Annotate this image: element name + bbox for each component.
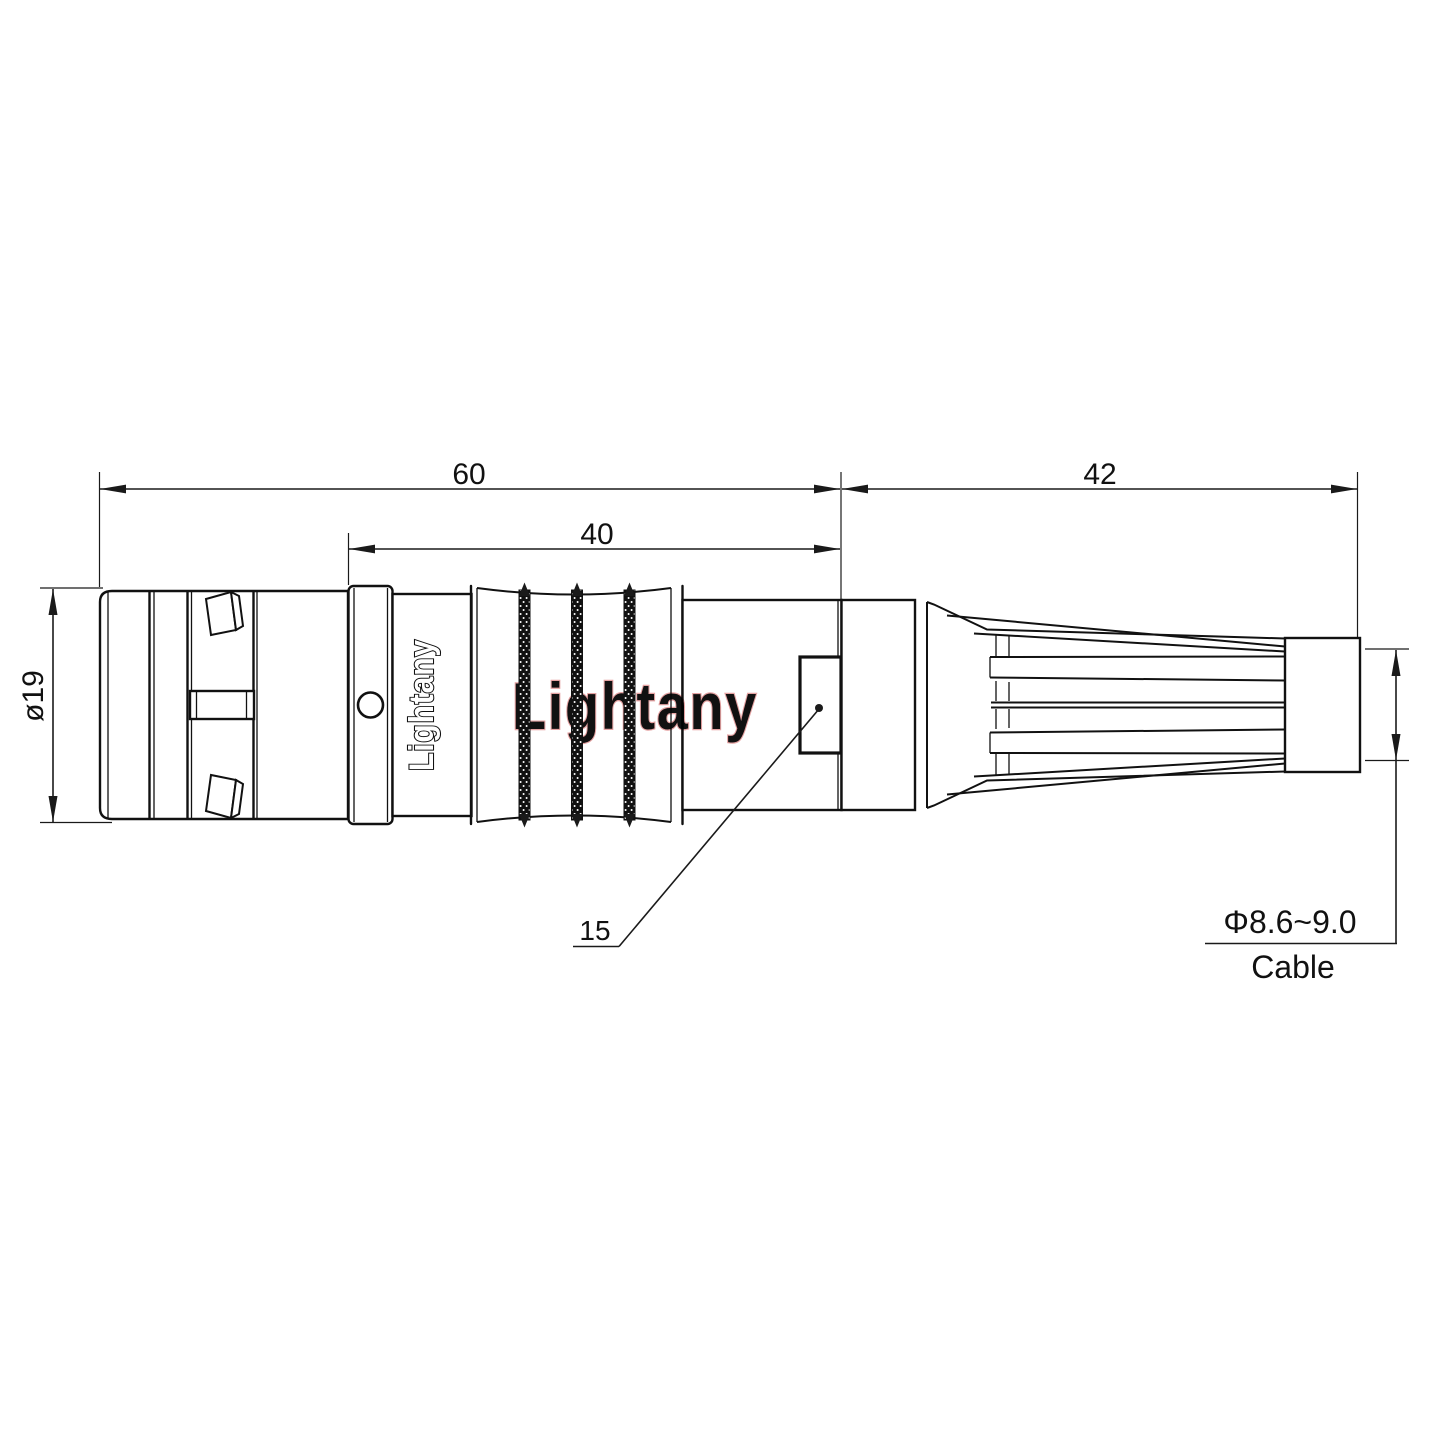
- leader-dot: [815, 704, 823, 712]
- dimension-40: 40: [349, 518, 841, 585]
- body-engraving-text: Lightany: [403, 639, 441, 771]
- engraved-section: Lightany: [393, 594, 472, 816]
- dim-42-label: 42: [1083, 458, 1116, 491]
- dim-60-label: 60: [452, 458, 485, 491]
- ring-hole: [358, 693, 383, 718]
- coupling-ring: [349, 586, 393, 824]
- boot-collar: [842, 600, 928, 810]
- connector-technical-drawing: Lightany: [0, 0, 1440, 1440]
- boot-fin-connectors: [996, 634, 1009, 776]
- dim-15-label: 15: [579, 915, 610, 946]
- cable-diameter-label: Φ8.6~9.0: [1223, 904, 1356, 940]
- dim-diameter-label: ø19: [17, 670, 50, 722]
- dimension-60: 60: [100, 458, 842, 599]
- dimension-diameter-19: ø19: [17, 588, 112, 823]
- knurl-band-1: [519, 583, 530, 828]
- drawing-sheet: Lightany: [0, 0, 1440, 1440]
- latch-window: [190, 691, 254, 719]
- front-shell: [100, 591, 348, 819]
- dim-40-label: 40: [580, 518, 613, 551]
- knurl-band-3: [624, 583, 635, 828]
- cable-end-cap: [1285, 638, 1360, 772]
- knurl-band-2: [572, 583, 583, 828]
- dimension-42: 42: [842, 458, 1358, 637]
- top-latch-key: [206, 592, 243, 635]
- bottom-latch-key: [206, 775, 243, 818]
- strain-relief-boot: [927, 602, 1285, 808]
- cable-label: Cable: [1251, 949, 1335, 985]
